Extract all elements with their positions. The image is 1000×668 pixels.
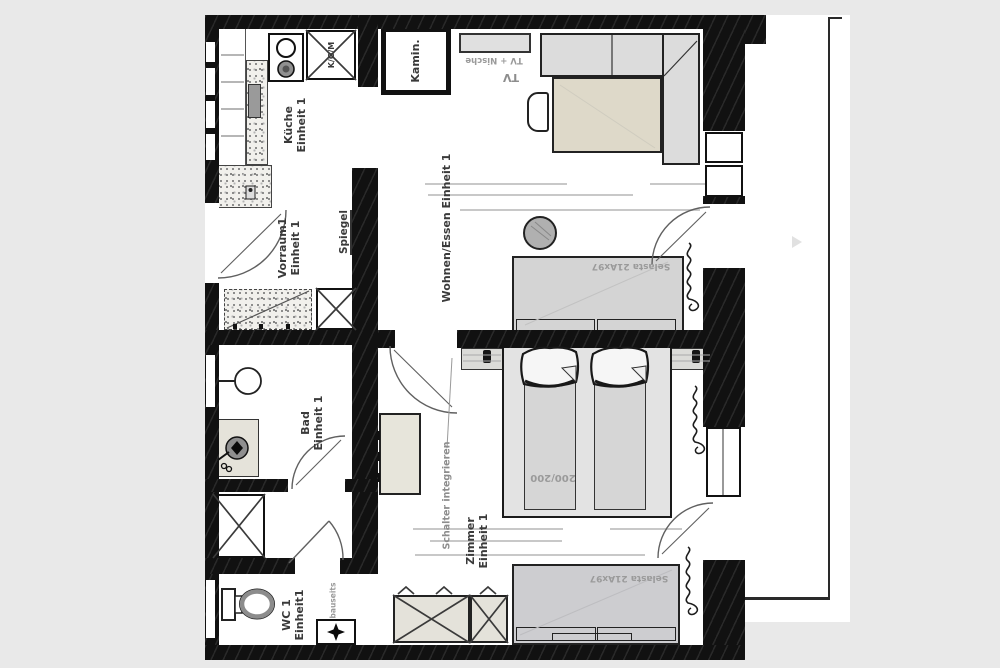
- wall-top: [205, 15, 745, 29]
- shower-tray: [217, 419, 259, 477]
- wc-shaft-box: [213, 494, 265, 558]
- kitchen-cabinet-row: [219, 29, 246, 165]
- corner-sofa-arm: [662, 33, 700, 165]
- kitchen-sink-cabinet: [248, 84, 261, 118]
- kitchen-window-mullion: [206, 62, 215, 68]
- switch-note-label: Schalter integrieren: [441, 441, 454, 551]
- vestibule-cabinet: [224, 289, 312, 330]
- floor-seam: [460, 209, 700, 211]
- stove: [268, 33, 304, 82]
- bedside-knob: [692, 350, 700, 363]
- wall-right-lower: [703, 560, 745, 645]
- wc-window: [206, 580, 215, 638]
- terrace-floor: [743, 15, 850, 622]
- fireplace-label: Kamin.: [408, 29, 424, 93]
- bath-window: [206, 355, 215, 407]
- bedside-shelf-left: [461, 348, 503, 370]
- wc-note-label: bauseits: [329, 579, 340, 623]
- wall-kitchen-divider-upper: [358, 15, 378, 87]
- tv-niche-shelf: [459, 33, 531, 53]
- bed-size-label: 200/200: [528, 470, 578, 484]
- kitchen-window-mullion: [206, 95, 215, 101]
- floor-seam: [610, 528, 682, 530]
- room-label-bath: Bad Einheit 1: [297, 395, 329, 451]
- mirror-label: Spiegel: [337, 207, 351, 257]
- wall-right-upper: [703, 15, 745, 131]
- vestibule-shaft-box: [316, 288, 356, 330]
- bed-duvet-left: [524, 366, 576, 510]
- kitchen-window-mullion: [206, 128, 215, 134]
- wardrobe-box-narrow: [470, 595, 508, 643]
- wardrobe-box-wide: [393, 595, 470, 643]
- wall-bath-south-right: [345, 479, 378, 492]
- room-label-kitchen-line2: Einheit 1: [296, 98, 309, 153]
- side-table: [527, 92, 549, 132]
- wall-right-middle: [703, 268, 745, 427]
- corner-sofa-chaise: [552, 77, 662, 153]
- wall-wc-north-right: [340, 558, 378, 574]
- ventilation-box: [316, 619, 356, 645]
- floor-seam: [650, 183, 705, 185]
- room-label-wc-line2: Einheit1: [294, 589, 307, 640]
- room-label-vestibule-line2: Einheit 1: [290, 221, 303, 276]
- tv-niche-label: TV + Nische: [457, 54, 531, 66]
- living-window-lower: [705, 165, 743, 197]
- terrace-edge-line: [743, 597, 830, 600]
- bedroom-window: [706, 427, 741, 497]
- wall-right-window-sep: [703, 196, 745, 204]
- appliance-box-label: K/G/M: [326, 33, 338, 77]
- room-label-wc: WC 1 Einheit1: [278, 588, 310, 642]
- wall-vestibule-bath: [205, 330, 352, 345]
- wall-bath-south-left: [205, 479, 288, 492]
- wall-bedroom-door-post: [378, 330, 395, 348]
- sofa-model-label-bedroom: Selasta 21Ax97: [584, 572, 674, 584]
- terrace-parapet-line: [828, 17, 830, 600]
- bed-duvet-right: [594, 366, 646, 510]
- wall-living-bedroom: [457, 330, 743, 348]
- sofa-bed-bedroom-handle: [552, 633, 632, 641]
- floor-seam: [428, 194, 633, 196]
- kitchen-counter-corner: [217, 165, 272, 208]
- kitchen-window: [206, 42, 215, 160]
- room-label-living: Wohnen/Essen Einheit 1: [439, 158, 455, 298]
- room-label-bedroom: Zimmer Einheit 1: [462, 511, 494, 571]
- living-window-upper: [705, 132, 743, 163]
- terrace-parapet-tick: [828, 17, 842, 19]
- entry-door-gap: [205, 203, 219, 283]
- sofa-model-label-living: Selasta 21Ax97: [586, 260, 676, 272]
- room-label-vestibule: Vorraum1 Einheit 1: [273, 216, 307, 280]
- floorplan-canvas: Küche Einheit 1 K/G/M Kamin. TV + Nische…: [0, 0, 1000, 668]
- room-label-bedroom-line2: Einheit 1: [478, 514, 491, 569]
- room-label-bath-line2: Einheit 1: [313, 396, 326, 451]
- hall-dresser: [379, 413, 421, 495]
- wall-wc-north-left: [205, 558, 295, 574]
- floor-seam: [415, 554, 645, 556]
- bedside-knob: [483, 350, 491, 363]
- room-label-kitchen: Küche Einheit 1: [278, 85, 314, 165]
- wall-bottom: [205, 645, 745, 660]
- wall-kitchen-divider-lower: [352, 168, 378, 560]
- tv-label: TV: [498, 69, 524, 85]
